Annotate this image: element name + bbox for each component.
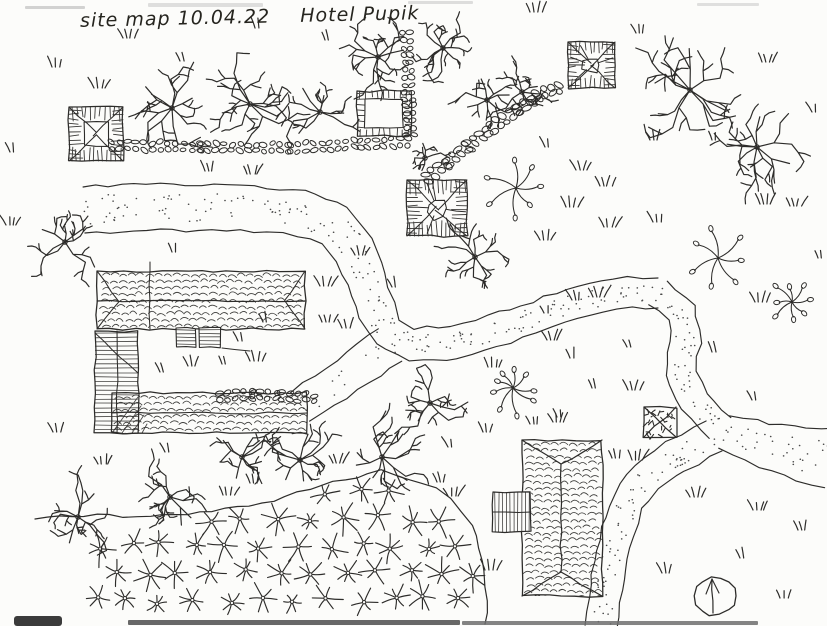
star-plant — [409, 580, 435, 610]
grass-tuft — [657, 562, 672, 573]
tree — [49, 466, 108, 555]
seed-head-plant — [689, 225, 745, 290]
star-plant — [134, 559, 166, 591]
star-plant — [460, 564, 485, 594]
star-plant — [334, 561, 362, 583]
south-building — [492, 440, 606, 600]
star-plant — [197, 561, 227, 584]
star-plant — [419, 539, 439, 556]
grass-tuft — [244, 164, 263, 174]
grass-tuft — [589, 286, 611, 297]
star-plant — [283, 533, 311, 561]
grass-tuft — [599, 217, 622, 227]
grass-tuft — [118, 29, 139, 38]
seed-plants — [484, 157, 814, 419]
grass-tuft — [314, 276, 338, 286]
star-plant — [359, 558, 390, 584]
star-plant — [250, 583, 277, 613]
tree — [636, 36, 741, 138]
star-plant — [234, 559, 257, 581]
star-plant — [221, 594, 244, 615]
porch — [199, 327, 221, 347]
site-map-drawing — [0, 0, 827, 626]
grass-tuft — [442, 437, 452, 447]
tree — [129, 62, 213, 148]
grass-tuft — [5, 143, 13, 152]
grass-tuft — [623, 340, 631, 347]
grass-tuft — [540, 137, 549, 147]
grass-tuft — [631, 24, 644, 33]
star-plant — [115, 590, 135, 610]
grass-tuft — [322, 30, 328, 40]
grass-tuft — [183, 355, 198, 366]
star-plant — [400, 563, 422, 581]
cobble-path — [107, 134, 413, 155]
star-plant — [162, 561, 188, 589]
grass-tuft — [176, 52, 184, 61]
field-boundary — [35, 470, 487, 624]
tree — [413, 143, 451, 170]
grass-tuft — [88, 77, 110, 88]
grass-tuft — [48, 56, 62, 67]
tree — [434, 218, 509, 288]
grass-tuft — [595, 176, 616, 186]
star-plant — [332, 503, 359, 536]
tree — [265, 421, 342, 481]
road-east-branch — [719, 416, 827, 488]
grass-tuft — [709, 131, 716, 140]
orchard-field — [35, 470, 487, 624]
grass-tuft — [535, 229, 556, 240]
star-plant — [229, 508, 249, 534]
grass-tuft — [319, 314, 338, 322]
star-plant — [186, 533, 205, 554]
star-plant — [248, 538, 272, 562]
grass-tuft — [647, 211, 662, 222]
star-plant — [403, 506, 427, 536]
grass-tuft — [540, 306, 548, 313]
grass-tuft — [443, 485, 465, 496]
tree — [395, 365, 468, 435]
main-building — [94, 262, 309, 438]
grass-tuft — [750, 291, 771, 302]
tree — [28, 211, 95, 287]
grass-tuft — [748, 500, 768, 510]
cobble-path — [399, 30, 418, 138]
grass-tuft — [755, 193, 775, 204]
grass-tuft — [794, 520, 806, 530]
road-south-branch — [585, 421, 722, 626]
star-plant — [355, 532, 373, 556]
grass-tuft — [94, 454, 112, 464]
tree — [710, 104, 810, 204]
grass-tuft — [526, 416, 538, 424]
star-plant — [294, 563, 324, 585]
tree — [206, 53, 310, 145]
annex — [492, 492, 531, 533]
grass-tuft — [155, 363, 163, 372]
tree — [210, 431, 280, 484]
grass-tuft — [686, 486, 706, 497]
tree-canopy-square — [68, 106, 124, 161]
grass-tuft — [570, 160, 591, 170]
seed-head-plant — [490, 366, 537, 419]
star-plant — [268, 560, 291, 585]
star-plant — [382, 584, 410, 609]
star-plant — [86, 586, 109, 609]
road-east-descent — [649, 281, 731, 438]
grass-tuft — [329, 452, 349, 463]
star-plant — [122, 529, 144, 553]
star-plant — [89, 535, 116, 568]
grass-tuft — [777, 590, 791, 598]
grass-tuft — [806, 102, 816, 112]
star-plant — [322, 533, 348, 559]
grass-tuft — [168, 243, 175, 252]
grass-tuft — [433, 472, 445, 482]
grass-tuft — [561, 196, 584, 207]
scanned-site-map: site map 10.04.22 Hotel Pupik — [0, 0, 827, 626]
grass-tuft — [484, 357, 502, 367]
grass-tuft — [548, 413, 568, 423]
grass-tuft — [623, 380, 644, 390]
star-plant — [180, 589, 203, 612]
grass-tuft — [747, 391, 756, 400]
grass-tuft — [387, 276, 395, 287]
star-plant — [145, 531, 173, 557]
grass-tuft — [589, 379, 596, 388]
cobble-path — [421, 80, 564, 185]
star-plant — [429, 507, 455, 538]
grass-tuft — [233, 332, 242, 341]
tree — [339, 18, 405, 101]
grass-tuft — [708, 342, 716, 353]
star-plant — [425, 557, 458, 584]
grass-tuft — [542, 329, 562, 340]
star-plant — [261, 503, 295, 535]
grass-tuft — [246, 350, 266, 361]
grass-tuft — [48, 423, 64, 433]
star-plant — [440, 535, 471, 559]
grass-tuft — [160, 443, 169, 452]
cobble-paths — [107, 30, 564, 405]
grass-tuft — [246, 472, 259, 483]
tree — [412, 12, 472, 83]
north-arrow — [694, 577, 736, 616]
star-plant — [350, 477, 372, 503]
grass-tuft — [351, 246, 370, 255]
grass-tuft — [0, 215, 20, 225]
star-plant — [284, 595, 302, 613]
grass-tuft — [565, 290, 579, 301]
grass-tuft — [338, 318, 354, 329]
star-plant — [297, 514, 318, 529]
star-plant — [376, 534, 403, 564]
star-plant — [147, 595, 166, 611]
seed-head-plant — [772, 282, 814, 323]
grass-tuft — [736, 547, 744, 558]
tree-canopy-square — [568, 41, 616, 89]
trees — [28, 12, 811, 555]
grass-tuft — [478, 422, 492, 432]
star-plant — [106, 560, 131, 587]
grass-tuft — [815, 251, 821, 259]
star-plant — [352, 588, 378, 615]
grass-tuft — [646, 130, 660, 141]
shed-marker — [643, 407, 677, 440]
grass-tuft — [609, 449, 621, 458]
grass-tuft — [219, 356, 225, 364]
grass-tuft — [201, 160, 214, 171]
grass-tuft — [553, 409, 561, 417]
grass-tuft — [251, 18, 259, 29]
star-plant — [208, 531, 238, 562]
grass-tuft — [628, 449, 649, 460]
grass-tuft — [219, 486, 239, 495]
grass-tuft — [786, 196, 808, 206]
grass-tuft — [759, 52, 778, 62]
star-plant — [312, 585, 343, 608]
star-plant — [196, 512, 227, 534]
grass-tuft — [526, 1, 546, 12]
tree — [356, 403, 428, 490]
seed-head-plant — [484, 157, 544, 221]
porch — [176, 327, 196, 347]
grass-tuft — [566, 347, 574, 358]
tree-canopy-square — [406, 179, 468, 237]
scan-artifacts — [14, 1, 759, 626]
tree — [448, 79, 524, 129]
star-plant — [447, 589, 470, 608]
star-plant — [365, 503, 391, 530]
